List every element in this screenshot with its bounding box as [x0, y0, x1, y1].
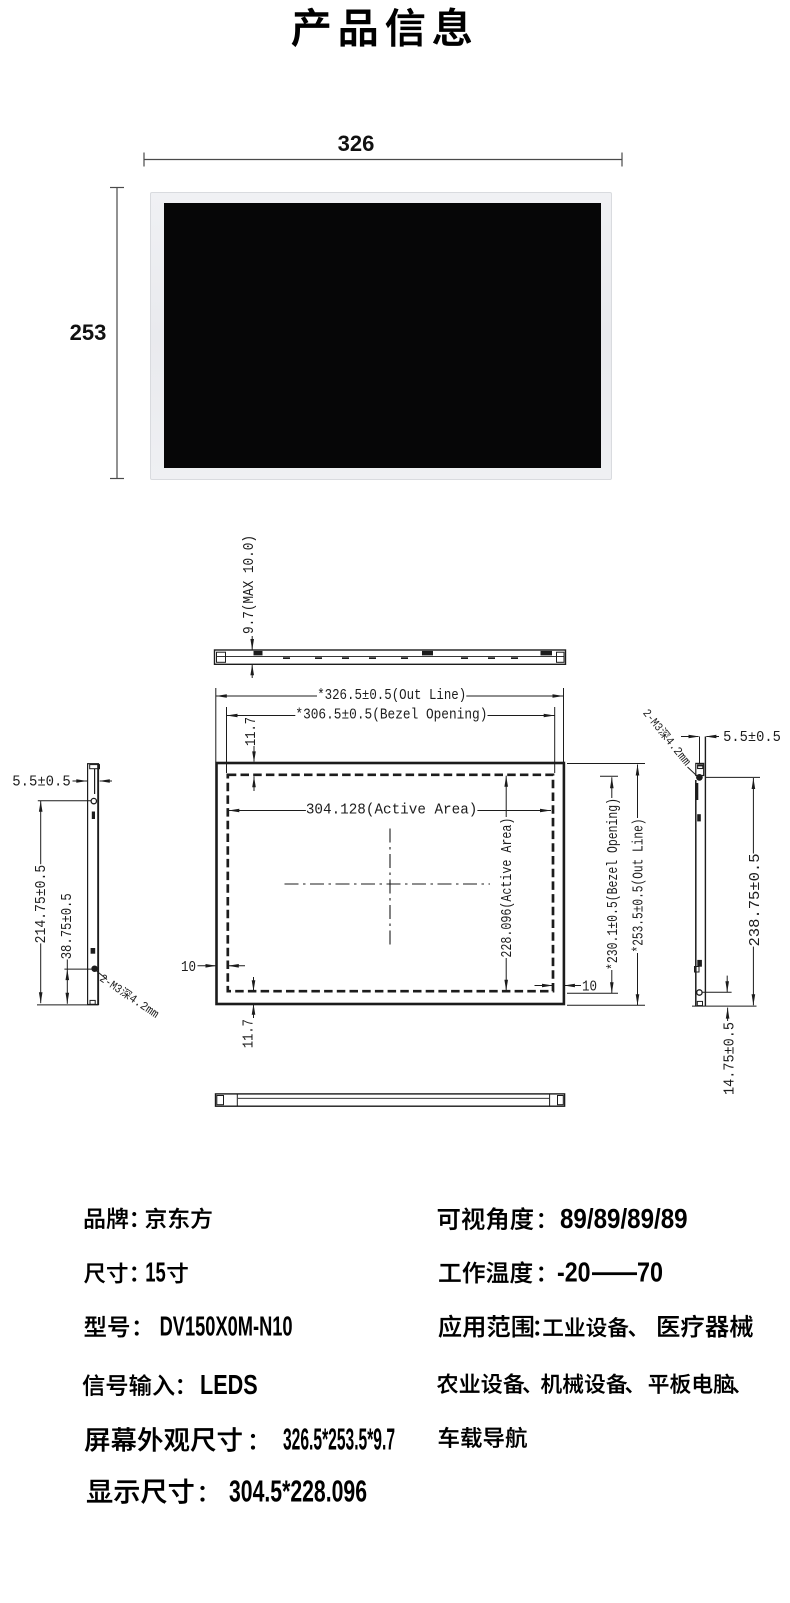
svg-text:14.75±0.5: 14.75±0.5 [722, 1022, 739, 1095]
svg-text:214.75±0.5: 214.75±0.5 [33, 865, 50, 944]
svg-text:4.2mm: 4.2mm [662, 734, 694, 768]
svg-text:2-M3: 2-M3 [639, 707, 665, 734]
svg-text:326.5*253.5*9.7: 326.5*253.5*9.7 [283, 1422, 395, 1457]
svg-text:DV150X0M-N10: DV150X0M-N10 [160, 1311, 293, 1342]
svg-text:5.5±0.5: 5.5±0.5 [723, 729, 781, 746]
svg-text:89/89/89/89: 89/89/89/89 [560, 1203, 688, 1234]
svg-text:304.5*228.096: 304.5*228.096 [229, 1474, 367, 1509]
svg-text:238.75±0.5: 238.75±0.5 [747, 854, 764, 947]
svg-text:LEDS: LEDS [200, 1369, 258, 1400]
svg-text:-20: -20 [557, 1257, 591, 1288]
svg-text:253: 253 [70, 320, 107, 345]
svg-text:70: 70 [637, 1257, 663, 1288]
svg-text:2-M3: 2-M3 [97, 972, 125, 997]
svg-text:326: 326 [338, 131, 375, 156]
svg-text:38.75±0.5: 38.75±0.5 [59, 893, 76, 959]
svg-text:4.2mm: 4.2mm [126, 992, 161, 1022]
svg-text:5.5±0.5: 5.5±0.5 [12, 774, 71, 791]
svg-text:15: 15 [145, 1257, 166, 1288]
